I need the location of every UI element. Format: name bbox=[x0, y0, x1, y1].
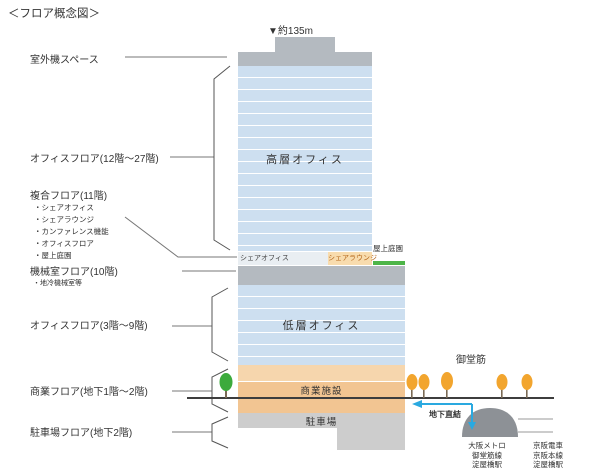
street-name-label: 御堂筋 bbox=[456, 351, 486, 366]
underground-link-label: 地下直結 bbox=[429, 409, 461, 420]
green-tree-trunk bbox=[225, 388, 227, 398]
label-outdoor-unit-space: 室外機スペース bbox=[30, 51, 99, 66]
tree-crown bbox=[497, 374, 508, 390]
brace-office-high bbox=[214, 66, 230, 250]
tree-trunk bbox=[446, 388, 448, 398]
station-metro-label: 大阪メトロ 御堂筋線 淀屋橋駅 bbox=[462, 441, 512, 470]
building-commercial-section: 商業施設 bbox=[238, 365, 405, 413]
share-office-area: シェアオフィス bbox=[238, 252, 328, 265]
leader-mixed-use bbox=[125, 217, 237, 257]
brace-commercial bbox=[212, 369, 228, 412]
label-office-floor-high: オフィスフロア(12階〜27階) bbox=[30, 150, 159, 165]
machine-room-item: ・地冷機械室等 bbox=[33, 278, 82, 288]
mixed-use-item-office: ・オフィスフロア bbox=[34, 238, 94, 249]
label-office-floor-low: オフィスフロア(3階〜9階) bbox=[30, 317, 148, 332]
brace-office-low bbox=[212, 288, 228, 361]
building-machine-room-band bbox=[238, 266, 405, 285]
tree-crown bbox=[419, 374, 430, 390]
keihan-station: 淀屋橋駅 bbox=[523, 460, 573, 470]
share-lounge-area: シェアラウンジ bbox=[328, 252, 372, 265]
tree-trunk bbox=[411, 388, 413, 398]
high-office-label: 高層オフィス bbox=[266, 151, 344, 167]
parking-label: 駐車場 bbox=[306, 414, 338, 428]
green-tree-crown bbox=[220, 373, 233, 391]
building-high-office-section: 高層オフィス bbox=[238, 66, 372, 251]
metro-line: 御堂筋線 bbox=[462, 451, 512, 461]
label-commercial-floor: 商業フロア(地下1階〜2階) bbox=[30, 383, 148, 398]
label-machine-room-floor: 機械室フロア(10階) bbox=[30, 263, 118, 278]
low-office-label: 低層オフィス bbox=[283, 317, 361, 333]
label-parking-floor: 駐車場フロア(地下2階) bbox=[30, 424, 132, 439]
mixed-use-item-share-office: ・シェアオフィス bbox=[34, 202, 94, 213]
tree-trunk bbox=[423, 388, 425, 398]
building-outdoor-unit-level bbox=[238, 52, 372, 66]
tree-trunk bbox=[501, 388, 503, 398]
tree-crown bbox=[522, 374, 533, 390]
brace-parking bbox=[212, 417, 228, 448]
mixed-use-item-conference: ・カンファレンス機能 bbox=[34, 226, 109, 237]
floor-concept-diagram: ＜フロア概念図＞ ▼約135m 室外機スペース オフィスフロア(12階〜27階)… bbox=[0, 0, 600, 473]
keihan-company: 京阪電車 bbox=[523, 441, 573, 451]
roof-garden-label: 屋上庭園 bbox=[373, 243, 403, 254]
street-trees bbox=[407, 372, 533, 398]
underground-arrowhead-down bbox=[468, 422, 476, 430]
building-rooftop-penthouse bbox=[275, 37, 335, 52]
building-parking-band: 駐車場 bbox=[238, 413, 405, 428]
mixed-use-item-roof-garden: ・屋上庭園 bbox=[34, 250, 72, 261]
keihan-line: 京阪本線 bbox=[523, 451, 573, 461]
subway-dome bbox=[462, 408, 518, 437]
building-parking-deep-section bbox=[337, 428, 405, 450]
commercial-facility-label: 商業施設 bbox=[238, 381, 405, 398]
commercial-upper-band bbox=[238, 365, 405, 382]
roof-garden-strip bbox=[373, 261, 405, 265]
tree-trunk bbox=[526, 388, 528, 398]
green-tree bbox=[220, 373, 233, 398]
metro-station: 淀屋橋駅 bbox=[462, 460, 512, 470]
tree-crown bbox=[441, 372, 453, 390]
diagram-title: ＜フロア概念図＞ bbox=[8, 5, 100, 21]
building-low-office-section: 低層オフィス bbox=[238, 285, 405, 365]
label-mixed-use-floor: 複合フロア(11階) bbox=[30, 187, 107, 202]
station-keihan-label: 京阪電車 京阪本線 淀屋橋駅 bbox=[523, 441, 573, 470]
tree-crown bbox=[407, 374, 418, 390]
underground-arrowhead-left bbox=[412, 400, 422, 408]
metro-company: 大阪メトロ bbox=[462, 441, 512, 451]
building-mixed-use-band: シェアオフィス シェアラウンジ bbox=[238, 252, 372, 265]
height-marker: ▼約135m bbox=[268, 22, 313, 37]
mixed-use-item-share-lounge: ・シェアラウンジ bbox=[34, 214, 94, 225]
